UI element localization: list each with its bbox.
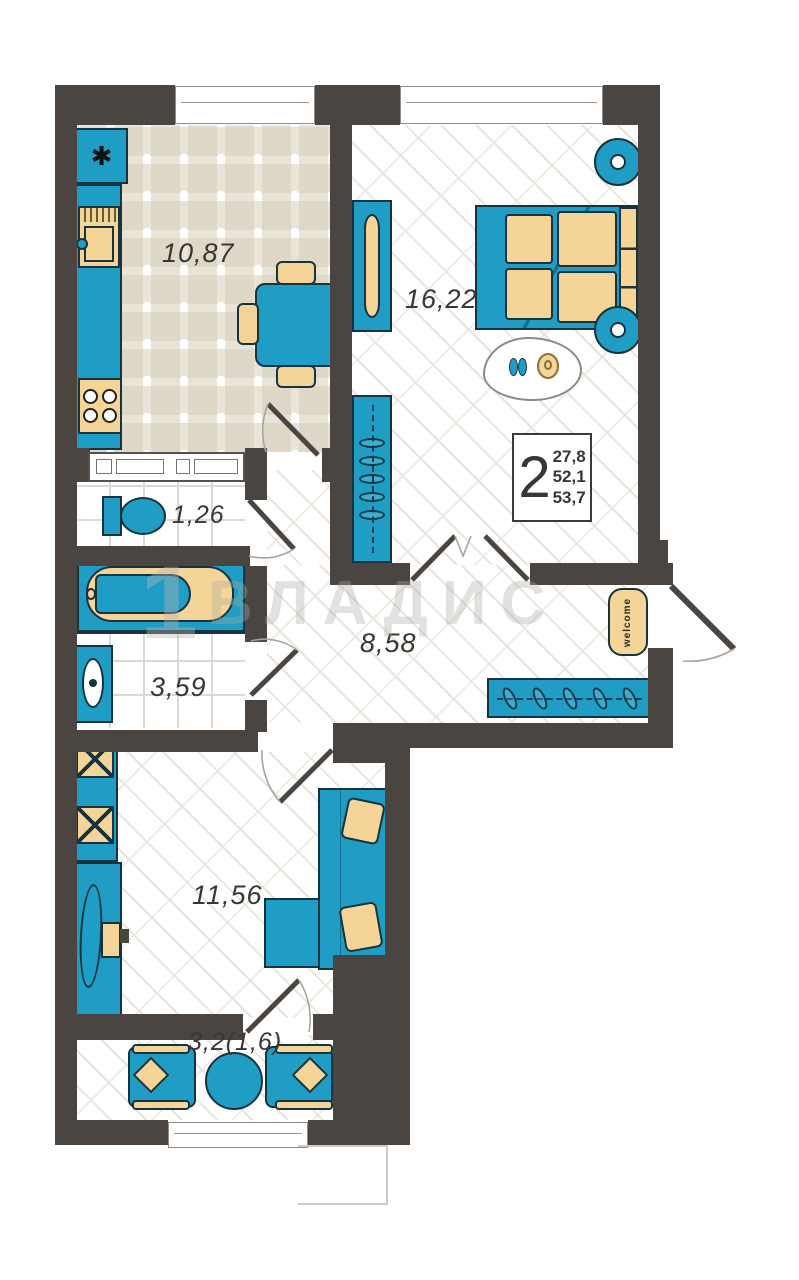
apartment-area-value: 52,1 (553, 467, 586, 487)
wall (245, 480, 267, 500)
total-area-value: 53,7 (553, 488, 586, 508)
room-label-balcony: 3,2(1,6) (188, 1028, 282, 1057)
desk-lamp-icon (120, 929, 129, 943)
bathtub (75, 556, 247, 634)
wall (530, 563, 673, 585)
wall (55, 730, 258, 752)
desk-monitor (101, 922, 121, 958)
rooms-count: 2 (518, 449, 550, 507)
wall (638, 540, 668, 565)
bedroom-window (400, 86, 603, 124)
kitchen-window (175, 86, 315, 124)
bed-pillow-3 (505, 268, 553, 320)
balcony-table (205, 1052, 263, 1110)
wall (603, 85, 660, 125)
slippers-icon-2 (518, 358, 527, 376)
wall (638, 125, 660, 565)
tv-icon (364, 214, 380, 318)
nightstand-bottom (594, 306, 642, 354)
room-label-toilet: 1,26 (172, 501, 225, 530)
entrance-mat-label: welcome (623, 597, 634, 646)
wall (313, 1014, 335, 1040)
kitchen-sink (78, 206, 120, 268)
wall (385, 763, 410, 955)
wall (55, 85, 77, 1145)
wall (245, 448, 267, 482)
sink-basin (84, 226, 114, 262)
fridge: ✱ (75, 128, 128, 184)
tv-stand (352, 200, 392, 332)
sofa-chaise (264, 898, 320, 968)
wardrobe-section-2 (76, 806, 114, 844)
room-label-hallway: 8,58 (360, 628, 417, 659)
toilet-tank (102, 496, 122, 536)
coat-rack (487, 678, 652, 718)
fridge-snowflake-icon: ✱ (91, 141, 113, 172)
entrance-door-arc (683, 649, 734, 661)
bed-pillow-1 (505, 214, 553, 264)
floor-plan: ✱ 2 27,8 52,1 (0, 0, 799, 1280)
balcony-armchair-left (128, 1046, 196, 1108)
neighbor-balcony-outline (298, 1145, 388, 1205)
slippers-icon (509, 358, 518, 376)
stove-burners (80, 380, 120, 432)
wall (245, 566, 267, 642)
wall (333, 955, 410, 1145)
apartment-info-box: 2 27,8 52,1 53,7 (512, 433, 592, 522)
bathroom-sink (75, 645, 113, 723)
kitchen-cabinet-row (88, 452, 245, 482)
kitchen-table (255, 283, 339, 367)
bedroom-floor (352, 125, 638, 565)
stove (78, 378, 122, 434)
room-label-bathroom: 3,59 (150, 672, 207, 703)
balcony-window (168, 1122, 308, 1148)
bathtub-faucet-icon (86, 588, 96, 600)
bedroom-rug (483, 337, 582, 401)
living-area-value: 27,8 (553, 447, 586, 467)
armchair-pillow (133, 1057, 170, 1094)
room-label-kitchen: 10,87 (162, 238, 235, 269)
wall (330, 125, 352, 465)
room-label-bedroom: 16,22 (405, 284, 478, 315)
room-label-living-room: 11,56 (192, 880, 263, 911)
sofa-pillow-2 (338, 901, 383, 953)
wall (55, 448, 90, 482)
kitchen-chair-left (237, 303, 259, 345)
nightstand-top (594, 138, 642, 186)
hallway-floor-upper (267, 470, 330, 565)
entrance-mat: welcome (608, 588, 648, 656)
bed-pillow-2 (557, 211, 617, 267)
bathtub-inner (86, 566, 234, 622)
wall (245, 700, 267, 732)
entrance-door-leaf (671, 586, 734, 649)
wall (333, 723, 410, 763)
kitchen-chair-top (276, 261, 316, 285)
wall (55, 546, 250, 566)
sink-faucet-icon (76, 238, 88, 250)
wall (308, 1120, 410, 1145)
armchair-pillow (292, 1057, 329, 1094)
toilet-bowl (120, 497, 166, 535)
rug-decor-icon (537, 353, 559, 379)
wall (315, 85, 400, 125)
wall (330, 563, 410, 585)
wall (55, 1120, 168, 1145)
bedroom-wardrobe (352, 395, 392, 563)
kitchen-chair-bottom (276, 365, 316, 388)
